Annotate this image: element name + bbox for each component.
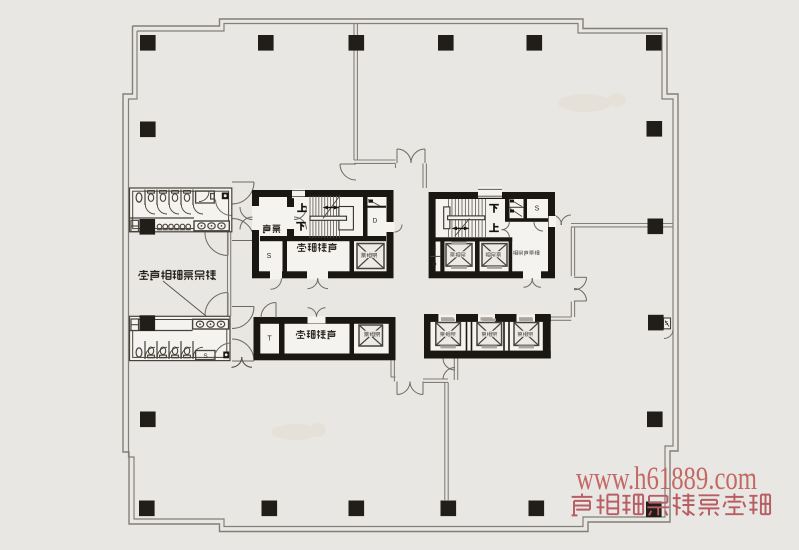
svg-text:www.h61889.com: www.h61889.com bbox=[576, 461, 757, 497]
svg-text:S: S bbox=[665, 321, 669, 327]
svg-text:D: D bbox=[373, 218, 378, 225]
svg-text:S: S bbox=[267, 253, 272, 260]
svg-text:T: T bbox=[267, 336, 272, 343]
svg-text:D: D bbox=[433, 262, 437, 268]
svg-text:S: S bbox=[203, 353, 208, 360]
svg-text:S: S bbox=[535, 206, 540, 213]
